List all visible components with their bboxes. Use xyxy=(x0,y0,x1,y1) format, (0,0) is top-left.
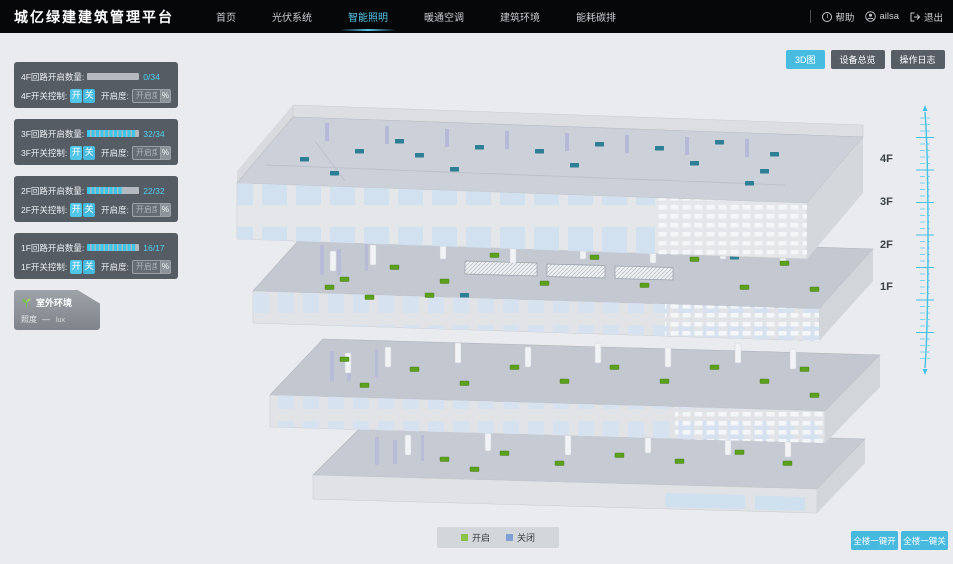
floor-label-1f[interactable]: 1F xyxy=(880,281,893,293)
legend-off-swatch xyxy=(506,534,513,541)
logout-icon xyxy=(910,12,921,22)
circuit-count-value: 32/34 xyxy=(143,129,164,139)
floor-label-4f[interactable]: 4F xyxy=(880,153,893,165)
floor-4f-model[interactable] xyxy=(237,105,863,259)
floor-control-column: 4F回路开启数量: 0/34 4F开关控制: 开 关 开启度: % 3F回路开启… xyxy=(14,62,178,330)
all-off-button[interactable]: 全楼一键关 xyxy=(901,531,948,550)
illuminance-label: 照度 xyxy=(21,314,37,325)
floor-panel-4f: 4F回路开启数量: 0/34 4F开关控制: 开 关 开启度: % xyxy=(14,62,178,108)
circuit-progress-bar xyxy=(87,244,139,251)
legend-item-on: 开启 xyxy=(461,531,490,544)
circuit-count-value: 16/17 xyxy=(143,243,164,253)
circuit-count-value: 0/34 xyxy=(143,72,160,82)
openness-label: 开启度: xyxy=(101,204,129,216)
floor-label-2f[interactable]: 2F xyxy=(880,239,893,251)
nav-item-pv-system[interactable]: 光伏系统 xyxy=(270,4,314,29)
percent-button[interactable]: % xyxy=(161,260,171,274)
logout-button[interactable]: 退出 xyxy=(910,10,943,24)
floor-label-3f[interactable]: 3F xyxy=(880,196,893,208)
user-account[interactable]: ailsa xyxy=(865,11,899,22)
device-overview-button[interactable]: 设备总览 xyxy=(831,50,885,69)
floor-2f-model[interactable] xyxy=(270,339,880,443)
openness-label: 开启度: xyxy=(101,147,129,159)
plant-icon xyxy=(21,297,32,308)
help-link[interactable]: 帮助 xyxy=(822,10,854,24)
switch-on-button[interactable]: 开 xyxy=(70,89,82,103)
floor-panel-2f: 2F回路开启数量: 22/32 2F开关控制: 开 关 开启度: % xyxy=(14,176,178,222)
circuit-count-label: 3F回路开启数量: xyxy=(21,128,84,140)
floor-panel-1f: 1F回路开启数量: 16/17 1F开关控制: 开 关 开启度: % xyxy=(14,233,178,279)
all-on-button[interactable]: 全楼一键开 xyxy=(851,531,898,550)
floor-zoom-ruler[interactable] xyxy=(906,102,944,378)
openness-label: 开启度: xyxy=(101,261,129,273)
help-label: 帮助 xyxy=(835,10,854,24)
illuminance-unit: lux xyxy=(56,317,65,324)
operation-log-button[interactable]: 操作日志 xyxy=(891,50,945,69)
switch-off-button[interactable]: 关 xyxy=(83,203,95,217)
openness-label: 开启度: xyxy=(101,90,129,102)
switch-control-label: 4F开关控制: xyxy=(21,90,67,102)
nav-item-home[interactable]: 首页 xyxy=(214,4,238,29)
nav-item-smart-lighting[interactable]: 智能照明 xyxy=(346,4,390,29)
switch-off-button[interactable]: 关 xyxy=(83,89,95,103)
openness-input[interactable] xyxy=(132,89,161,103)
user-bar: 帮助 ailsa 退出 xyxy=(810,10,943,24)
bulk-controls: 全楼一键开 全楼一键关 xyxy=(851,531,948,550)
percent-button[interactable]: % xyxy=(161,89,171,103)
switch-on-button[interactable]: 开 xyxy=(70,203,82,217)
header-divider xyxy=(810,10,811,23)
nav-item-energy-carbon[interactable]: 能耗碳排 xyxy=(574,4,618,29)
switch-off-button[interactable]: 关 xyxy=(83,146,95,160)
circuit-count-label: 4F回路开启数量: xyxy=(21,71,84,83)
legend-on-swatch xyxy=(461,534,468,541)
switch-on-button[interactable]: 开 xyxy=(70,146,82,160)
user-icon xyxy=(865,11,876,22)
switch-off-button[interactable]: 关 xyxy=(83,260,95,274)
top-header: 城亿绿建建筑管理平台 首页 光伏系统 智能照明 暖通空调 建筑环境 能耗碳排 帮… xyxy=(0,0,953,33)
switch-on-button[interactable]: 开 xyxy=(70,260,82,274)
nav-item-hvac[interactable]: 暖通空调 xyxy=(422,4,466,29)
switch-control-label: 3F开关控制: xyxy=(21,147,67,159)
logout-label: 退出 xyxy=(924,10,943,24)
outdoor-env-panel: 室外环境 照度 — lux xyxy=(14,290,100,330)
openness-input[interactable] xyxy=(132,260,161,274)
nav-item-building-env[interactable]: 建筑环境 xyxy=(498,4,542,29)
legend-item-off: 关闭 xyxy=(506,531,535,544)
openness-input[interactable] xyxy=(132,146,161,160)
legend-on-label: 开启 xyxy=(472,531,490,544)
lights-legend: 开启 关闭 xyxy=(437,527,559,548)
percent-button[interactable]: % xyxy=(161,203,171,217)
username: ailsa xyxy=(879,11,899,22)
switch-control-label: 2F开关控制: xyxy=(21,204,67,216)
info-icon xyxy=(822,12,832,22)
circuit-progress-bar xyxy=(87,130,139,137)
view-3d-button[interactable]: 3D图 xyxy=(786,50,825,69)
app-title: 城亿绿建建筑管理平台 xyxy=(14,7,174,27)
percent-button[interactable]: % xyxy=(161,146,171,160)
switch-control-label: 1F开关控制: xyxy=(21,261,67,273)
circuit-progress-bar xyxy=(87,187,139,194)
outdoor-panel-title: 室外环境 xyxy=(36,296,72,309)
circuit-count-value: 22/32 xyxy=(143,186,164,196)
main-nav: 首页 光伏系统 智能照明 暖通空调 建筑环境 能耗碳排 xyxy=(214,4,618,29)
openness-input[interactable] xyxy=(132,203,161,217)
floor-panel-3f: 3F回路开启数量: 32/34 3F开关控制: 开 关 开启度: % xyxy=(14,119,178,165)
building-3d-view[interactable] xyxy=(225,95,890,535)
illuminance-value: — xyxy=(42,315,51,324)
circuit-count-label: 1F回路开启数量: xyxy=(21,242,84,254)
circuit-progress-bar xyxy=(87,73,139,80)
legend-off-label: 关闭 xyxy=(517,531,535,544)
circuit-count-label: 2F回路开启数量: xyxy=(21,185,84,197)
view-switcher: 3D图 设备总览 操作日志 xyxy=(786,50,945,69)
